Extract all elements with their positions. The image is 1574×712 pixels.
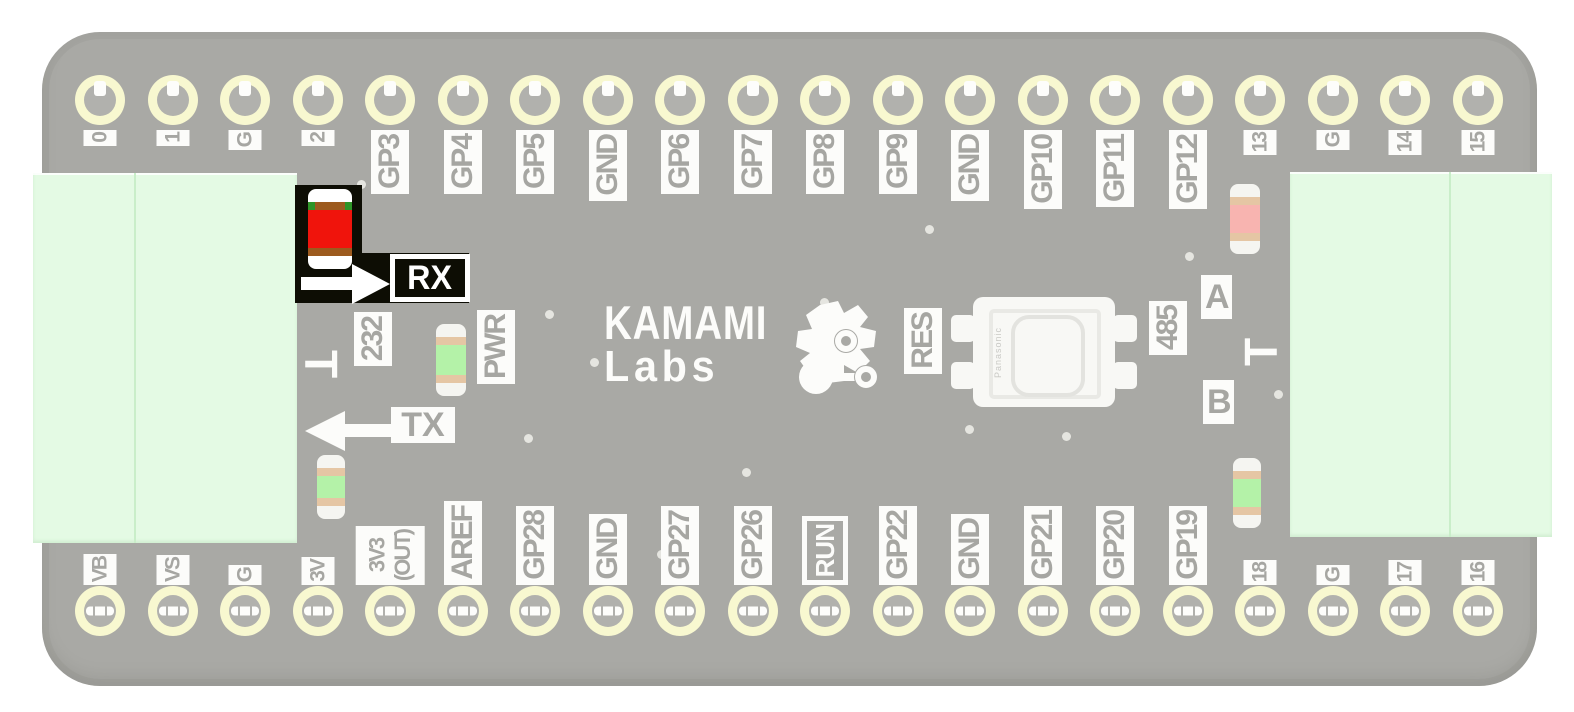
pin-label-15-top: 15 [1461, 130, 1494, 155]
pin-hole [1380, 586, 1430, 636]
line-b-label: B [1203, 380, 1234, 424]
pwr-label: PWR [477, 310, 515, 384]
pin-label-text: 16 [1467, 563, 1488, 582]
pin-hole-plating [737, 595, 769, 627]
pwr-led [436, 324, 466, 396]
pin-hole-slot [1029, 607, 1057, 616]
pin-label-gnd-bottom: GND [589, 514, 627, 585]
rx-led-cap [308, 189, 352, 202]
pin-hole [1308, 586, 1358, 636]
pin-hole [1090, 75, 1140, 125]
reset-button-brand: Panasonic [993, 317, 1003, 389]
pin-label-text: 1 [162, 133, 183, 143]
via-dot [965, 425, 974, 434]
pin-hole-slot [1464, 607, 1492, 616]
gp13-led-pad [1230, 197, 1260, 205]
pin-hole-slot [964, 81, 976, 96]
pin-hole-plating [1317, 84, 1349, 116]
reset-button-leg [951, 315, 975, 342]
pin-label-text: 3V [307, 560, 328, 582]
pin-label-gp21-bottom: GP21 [1024, 506, 1062, 585]
pin-hole-plating [302, 84, 334, 116]
pin-hole-slot [884, 607, 912, 616]
pin-label-gp12-top: GP12 [1169, 130, 1207, 209]
pin-hole [75, 586, 125, 636]
pin-hole-slot [1182, 81, 1194, 96]
pin-hole-slot [529, 81, 541, 96]
pin-hole-slot [1246, 607, 1274, 616]
pin-hole [1018, 586, 1068, 636]
pin-label-gp10-top: GP10 [1024, 130, 1062, 209]
pin-hole-slot [594, 607, 622, 616]
pin-label-text: GP5 [520, 135, 550, 189]
pin-label-g-bottom: G [1316, 565, 1349, 585]
pin-label-text: AREF [448, 506, 478, 580]
pin-hole [75, 75, 125, 125]
gp13-led-cap [1230, 241, 1260, 254]
pin-label-text: GP22 [883, 511, 913, 580]
pin-label-gp5-top: GP5 [516, 130, 554, 194]
t-marker-left: T [300, 338, 342, 390]
via-dot [742, 468, 751, 477]
pin-hole-plating [447, 595, 479, 627]
pin-label-text: GP21 [1028, 511, 1058, 580]
pin-hole-plating [157, 595, 189, 627]
v3-led-body [317, 476, 345, 498]
pwr-led-pad [436, 337, 466, 345]
pwr-led-cap [436, 383, 466, 396]
pin-label-text: 3V3 (OUT) [365, 530, 416, 581]
pin-hole-slot [521, 607, 549, 616]
pin-hole [655, 75, 705, 125]
pin-label-text: GP7 [738, 135, 768, 189]
pin-hole-slot [1109, 81, 1121, 96]
pin-hole [583, 586, 633, 636]
gp13-led-body [1230, 205, 1260, 233]
pin-hole-plating [1244, 595, 1276, 627]
pin-hole-slot [1472, 81, 1484, 96]
pin18-led-cap [1233, 458, 1261, 471]
pin-label-text: GP19 [1173, 511, 1203, 580]
pin-hole-plating [1099, 595, 1131, 627]
pin-hole-slot [1037, 81, 1049, 96]
line-a-label: A [1201, 275, 1232, 319]
pin-label-gnd-top: GND [951, 130, 989, 201]
pin-label-gp28-bottom: GP28 [516, 506, 554, 585]
pin-label-gp3-top: GP3 [371, 130, 409, 194]
pin-hole-plating [519, 84, 551, 116]
pin-hole-plating [1172, 595, 1204, 627]
pin-hole-slot [819, 81, 831, 96]
pin-label-gp27-bottom: GP27 [661, 506, 699, 585]
pin-hole-slot [892, 81, 904, 96]
v3-led [317, 455, 345, 519]
rx-label: RX [390, 254, 470, 302]
pin-label-18-bottom: 18 [1244, 560, 1277, 585]
pin-hole [1380, 75, 1430, 125]
pin-hole-slot [449, 607, 477, 616]
pin-label-g-bottom: G [229, 565, 262, 585]
via-dot [925, 225, 934, 234]
pin-hole-plating [1317, 595, 1349, 627]
pin-label-2-top: 2 [301, 130, 334, 146]
v3-led-cap [317, 455, 345, 468]
gp13-led-pad [1230, 233, 1260, 241]
v3-led-pad [317, 498, 345, 506]
pin-label-gnd-bottom: GND [951, 514, 989, 585]
via-dot [1185, 252, 1194, 261]
pin-hole [293, 75, 343, 125]
pin-label-text: G [235, 568, 256, 582]
pin-hole-slot [739, 607, 767, 616]
pin-hole-slot [1254, 81, 1266, 96]
pin-label-text: RUN [812, 524, 838, 577]
pin-hole-slot [1101, 607, 1129, 616]
pin-hole-slot [1399, 81, 1411, 96]
pin-hole-plating [229, 595, 261, 627]
pin-label-text: GP26 [738, 511, 768, 580]
pin-label-text: 18 [1250, 563, 1271, 582]
via-dot [590, 358, 599, 367]
pin-label-vs-bottom: VS [156, 555, 189, 585]
rx-arrow-icon [352, 264, 390, 304]
pin-label-text: G [1322, 568, 1343, 582]
pin-hole-plating [592, 84, 624, 116]
pin-hole [800, 586, 850, 636]
pin-hole-plating [1099, 84, 1131, 116]
pin-hole-slot [86, 607, 114, 616]
pin-label-text: GP27 [665, 511, 695, 580]
pin-label-gp9-top: GP9 [879, 130, 917, 194]
pin-hole [148, 75, 198, 125]
pin-label-g-top: G [229, 130, 262, 150]
pin-hole [1018, 75, 1068, 125]
pin-hole [873, 586, 923, 636]
pin-label-gp7-top: GP7 [734, 130, 772, 194]
pin-label-text: VB [90, 557, 111, 582]
pin-hole-plating [882, 84, 914, 116]
t-marker-right: T [1240, 326, 1282, 378]
pin-hole-slot [666, 607, 694, 616]
pin-label-text: GP20 [1100, 511, 1130, 580]
pin18-led-pad [1233, 471, 1261, 479]
pin-hole [438, 75, 488, 125]
pin-label-text: GP28 [520, 511, 550, 580]
rx-label-text: RX [408, 259, 453, 298]
pin-hole-plating [954, 595, 986, 627]
pin-label-text: G [235, 133, 256, 147]
pin-hole [1163, 586, 1213, 636]
pin-label-gp19-bottom: GP19 [1169, 506, 1207, 585]
pin-hole [655, 586, 705, 636]
rx-led-cap [308, 256, 352, 269]
pin-hole-plating [1027, 595, 1059, 627]
tx-arrow-icon [305, 411, 345, 451]
pin-label-text: GND [955, 519, 985, 580]
pin18-led-pad [1233, 507, 1261, 515]
pin-label-gp26-bottom: GP26 [734, 506, 772, 585]
res-label: RES [904, 308, 942, 374]
pin-label-gp8-top: GP8 [806, 130, 844, 194]
pin-label-text: GP4 [448, 135, 478, 189]
pin-hole-slot [167, 81, 179, 96]
pin-hole-slot [1327, 81, 1339, 96]
pin-label-14-top: 14 [1389, 130, 1422, 155]
via-dot [1062, 432, 1071, 441]
pin-label-0-top: 0 [84, 130, 117, 146]
pin-hole-plating [882, 595, 914, 627]
pin-hole-plating [1244, 84, 1276, 116]
pin-hole [1308, 75, 1358, 125]
pin-label-gp22-bottom: GP22 [879, 506, 917, 585]
pin-hole [148, 586, 198, 636]
pin-hole [510, 586, 560, 636]
pin-hole-plating [1172, 84, 1204, 116]
pin-hole-plating [1027, 84, 1059, 116]
pin-hole-slot [811, 607, 839, 616]
pin-label-gp11-top: GP11 [1096, 130, 1134, 207]
pin-hole [945, 75, 995, 125]
pin-label-3v3-out--bottom: 3V3 (OUT) [356, 526, 425, 585]
pin-hole-slot [956, 607, 984, 616]
rx-led-pad [308, 202, 352, 210]
pin-hole-plating [302, 595, 334, 627]
pin-hole-slot [674, 81, 686, 96]
pin-label-text: 13 [1250, 133, 1271, 152]
pin-hole-plating [447, 84, 479, 116]
tx-label: TX [391, 407, 455, 443]
pin-hole-slot [747, 81, 759, 96]
pin-label-vb-bottom: VB [84, 554, 117, 585]
pin-hole-plating [737, 84, 769, 116]
pin-label-text: GP11 [1100, 135, 1130, 202]
pin-label-text: GP6 [665, 135, 695, 189]
pin-hole-slot [231, 607, 259, 616]
pin-label-text: GND [593, 519, 623, 580]
pin-label-text: 2 [307, 133, 328, 143]
tx-label-text: TX [401, 406, 444, 445]
rx-arrow-icon [301, 277, 355, 290]
pin-hole [1235, 586, 1285, 636]
pin18-led-cap [1233, 515, 1261, 528]
pin-hole [1235, 75, 1285, 125]
pin-label-3v-bottom: 3V [301, 557, 334, 585]
pin-label-gp6-top: GP6 [661, 130, 699, 194]
pin-label-g-top: G [1316, 130, 1349, 150]
pin-hole-slot [159, 607, 187, 616]
pin-label-16-bottom: 16 [1461, 560, 1494, 585]
pin18-led [1233, 458, 1261, 528]
pwr-led-pad [436, 375, 466, 383]
pin-hole [583, 75, 633, 125]
pin-hole-plating [809, 595, 841, 627]
pin-hole [1453, 586, 1503, 636]
pin-hole-plating [664, 84, 696, 116]
pin-hole [1090, 586, 1140, 636]
via-dot [1274, 390, 1283, 399]
reset-button-actuator [1011, 315, 1085, 397]
pin-hole-plating [1389, 84, 1421, 116]
via-dot [545, 310, 554, 319]
rx-led [308, 189, 352, 269]
pin-label-text: GP3 [375, 135, 405, 189]
pin-hole-slot [602, 81, 614, 96]
pin-hole-plating [229, 84, 261, 116]
pin-hole-plating [809, 84, 841, 116]
pin-label-gp20-bottom: GP20 [1096, 506, 1134, 585]
pin-hole [438, 586, 488, 636]
pin-label-text: GP8 [810, 135, 840, 189]
pin-hole-slot [1174, 607, 1202, 616]
reset-button-leg [1113, 315, 1137, 342]
rs232-label: 232 [354, 312, 392, 366]
pin-label-text: 15 [1467, 133, 1488, 152]
pin-hole [800, 75, 850, 125]
via-dot [524, 434, 533, 443]
pin-hole-slot [239, 81, 251, 96]
pin-label-text: 17 [1395, 563, 1416, 582]
pin-label-text: G [1322, 133, 1343, 147]
pin-hole [945, 586, 995, 636]
pin-label-text: GP10 [1028, 135, 1058, 204]
pin-hole-plating [1389, 595, 1421, 627]
pwr-led-body [436, 345, 466, 375]
pin-hole [1163, 75, 1213, 125]
pinout-diagram: 01G2GP3GP4GP5GNDGP6GP7GP8GP9GNDGP10GP11G… [0, 0, 1574, 712]
pin-hole [293, 586, 343, 636]
pin-hole-plating [374, 84, 406, 116]
pwr-led-cap [436, 324, 466, 337]
gp13-led-cap [1230, 184, 1260, 197]
reset-button-leg [1113, 362, 1137, 389]
pin-label-text: 0 [90, 133, 111, 143]
pin-label-gp4-top: GP4 [444, 130, 482, 194]
pin-label-17-bottom: 17 [1389, 560, 1422, 585]
tx-arrow-icon [344, 424, 392, 437]
pin-label-text: GP12 [1173, 135, 1203, 204]
v3-led-cap [317, 506, 345, 519]
pin-hole [873, 75, 923, 125]
left-terminal-block [33, 173, 297, 543]
pin-label-text: 14 [1395, 133, 1416, 152]
pin-label-aref-bottom: AREF [444, 501, 482, 585]
pin-hole-plating [84, 84, 116, 116]
pin-hole-plating [592, 595, 624, 627]
pin-hole-slot [312, 81, 324, 96]
pin-label-gnd-top: GND [589, 130, 627, 201]
pin-label-text: GND [955, 135, 985, 196]
v3-led-pad [317, 468, 345, 476]
rx-led-body [308, 210, 352, 248]
pin-hole [728, 586, 778, 636]
gear-icon [786, 301, 890, 405]
pin-hole-slot [376, 607, 404, 616]
pin-label-run-bottom: RUN [802, 516, 848, 585]
pin-hole-plating [519, 595, 551, 627]
reset-button-leg [951, 362, 975, 389]
pin-hole-plating [374, 595, 406, 627]
pin-hole-slot [94, 81, 106, 96]
pin-label-text: GND [593, 135, 623, 196]
pin-hole-plating [84, 595, 116, 627]
pin-hole [728, 75, 778, 125]
pin-label-text: GP9 [883, 135, 913, 189]
pin-hole [220, 75, 270, 125]
pin-label-1-top: 1 [156, 130, 189, 146]
pin-label-13-top: 13 [1244, 130, 1277, 155]
pin-hole-plating [1462, 84, 1494, 116]
pin-hole-slot [384, 81, 396, 96]
rx-led-pad [308, 248, 352, 256]
terminal-divider [1449, 172, 1451, 537]
gp13-led [1230, 184, 1260, 254]
pin-hole-slot [1319, 607, 1347, 616]
pin-hole-slot [1391, 607, 1419, 616]
pin-hole [510, 75, 560, 125]
pin-hole [220, 586, 270, 636]
pin-hole [1453, 75, 1503, 125]
terminal-divider [134, 173, 136, 543]
pin-hole-slot [304, 607, 332, 616]
pin-hole [365, 586, 415, 636]
pin18-led-body [1233, 479, 1261, 507]
pin-label-text: VS [162, 558, 183, 582]
pin-hole-plating [157, 84, 189, 116]
pin-hole-slot [457, 81, 469, 96]
right-terminal-block [1290, 172, 1552, 537]
rs485-label: 485 [1149, 301, 1187, 355]
pin-hole [365, 75, 415, 125]
pin-hole-plating [664, 595, 696, 627]
pin-hole-plating [1462, 595, 1494, 627]
pin-hole-plating [954, 84, 986, 116]
